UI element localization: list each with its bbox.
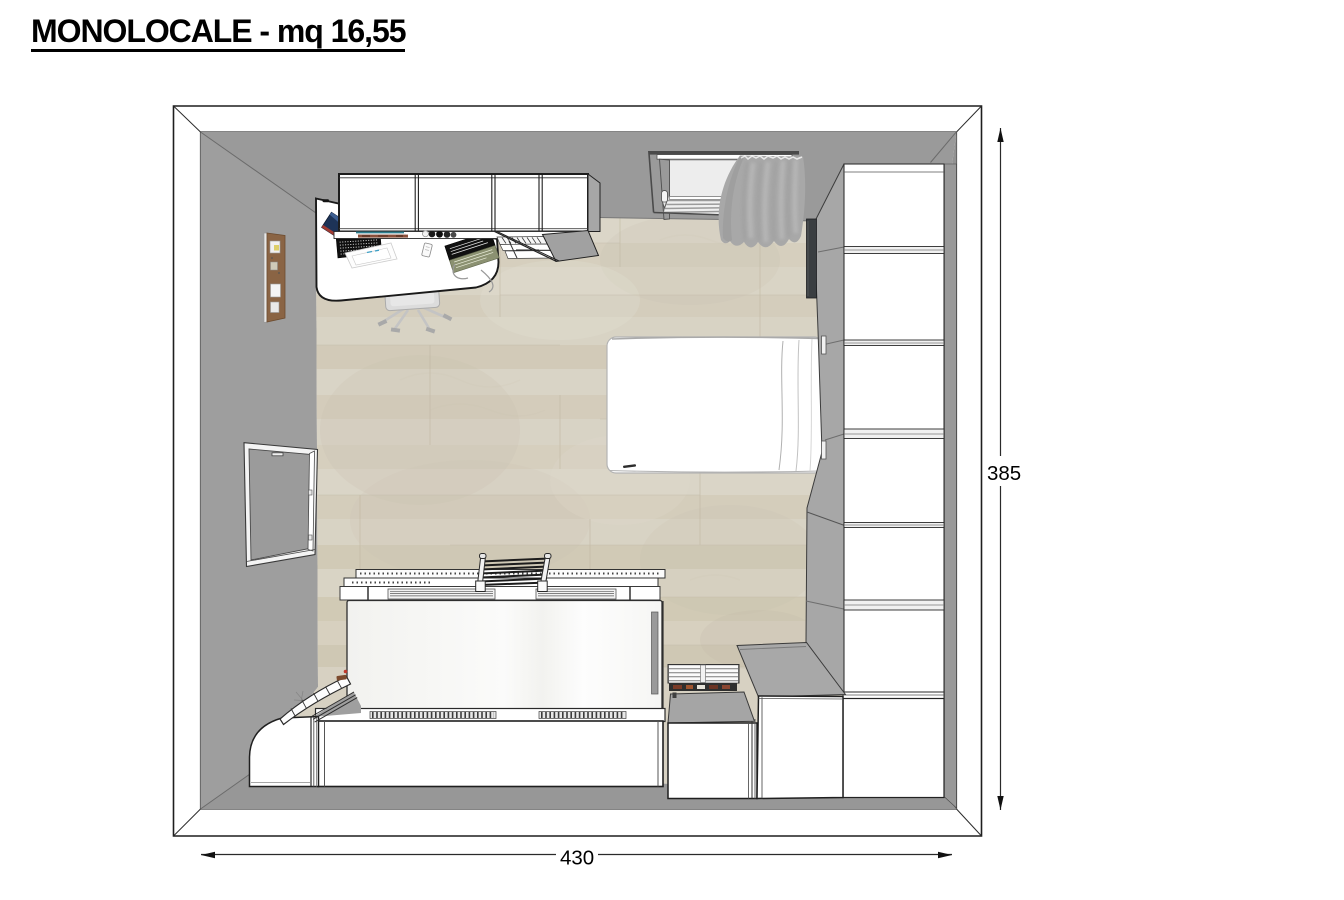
svg-text:430: 430: [560, 847, 594, 870]
svg-text:385: 385: [987, 462, 1021, 485]
